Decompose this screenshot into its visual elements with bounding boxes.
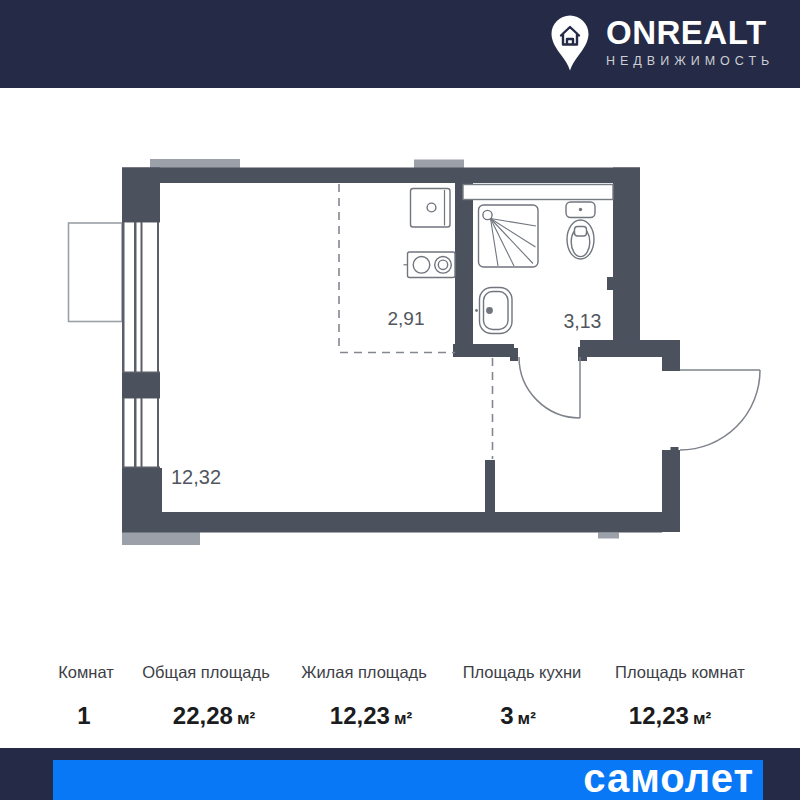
col-header-total-area: Общая площадь xyxy=(142,663,269,682)
value-total-area: 22,28м² xyxy=(173,702,255,730)
kitchen-sink-icon xyxy=(411,189,451,228)
col-header-living-area: Жилая площадь xyxy=(301,663,427,682)
toilet-icon xyxy=(566,202,595,259)
shower-icon xyxy=(479,205,539,267)
value-rooms-area: 12,23м² xyxy=(629,702,711,730)
samolet-wordmark: самолет xyxy=(583,760,754,796)
value-living-area: 12,23м² xyxy=(330,702,412,730)
col-header-rooms-area: Площадь комнат xyxy=(615,663,745,682)
value-kitchen-area: 3м² xyxy=(500,702,536,730)
samolet-brand-bar: самолет xyxy=(53,760,763,800)
balcony-outline xyxy=(69,223,123,322)
bathroom-area-label: 3,13 xyxy=(564,310,602,332)
listing-image: ONREALT НЕДВИЖИМОСТЬ xyxy=(0,0,800,800)
kitchen-area-label: 2,91 xyxy=(388,308,425,329)
bathroom-door-arc xyxy=(519,357,580,418)
door-swings xyxy=(519,357,760,450)
col-header-kitchen-area: Площадь кухни xyxy=(463,663,582,682)
bath-sink-icon xyxy=(475,288,512,334)
windows xyxy=(122,221,160,468)
stove-icon xyxy=(404,252,456,278)
entry-door-arc xyxy=(680,370,760,450)
vent-shaft-box xyxy=(463,185,613,200)
living-room-area-label: 12,32 xyxy=(171,466,221,488)
col-header-rooms: Комнат xyxy=(58,663,114,682)
value-rooms: 1 xyxy=(77,702,94,730)
